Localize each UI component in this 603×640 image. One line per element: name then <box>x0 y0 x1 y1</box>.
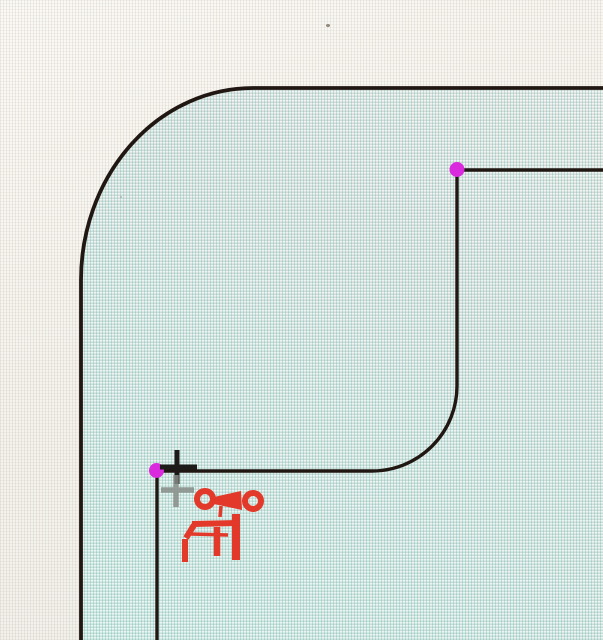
fillet-endpoint-glyph-left <box>197 491 213 507</box>
fillet-endpoint-glyph-right <box>245 493 261 509</box>
fillet-glyph-stem <box>220 506 221 517</box>
sketch-overlay <box>0 0 603 640</box>
fillet-tool-cursor-icon <box>185 491 261 562</box>
fillet-corner-glyph-top-bar <box>192 523 238 524</box>
fillet-corner-glyph-inner-bar <box>191 534 228 535</box>
fillet-corner-glyph-chamfer <box>186 525 194 538</box>
sketch-endpoint-top-right[interactable] <box>450 162 465 177</box>
fillet-arc-glyph <box>214 491 242 510</box>
cursor-crosshair-gray-icon <box>161 475 194 507</box>
cad-viewport[interactable] <box>0 0 603 640</box>
step-profile-line-with-fillet[interactable] <box>157 170 603 640</box>
